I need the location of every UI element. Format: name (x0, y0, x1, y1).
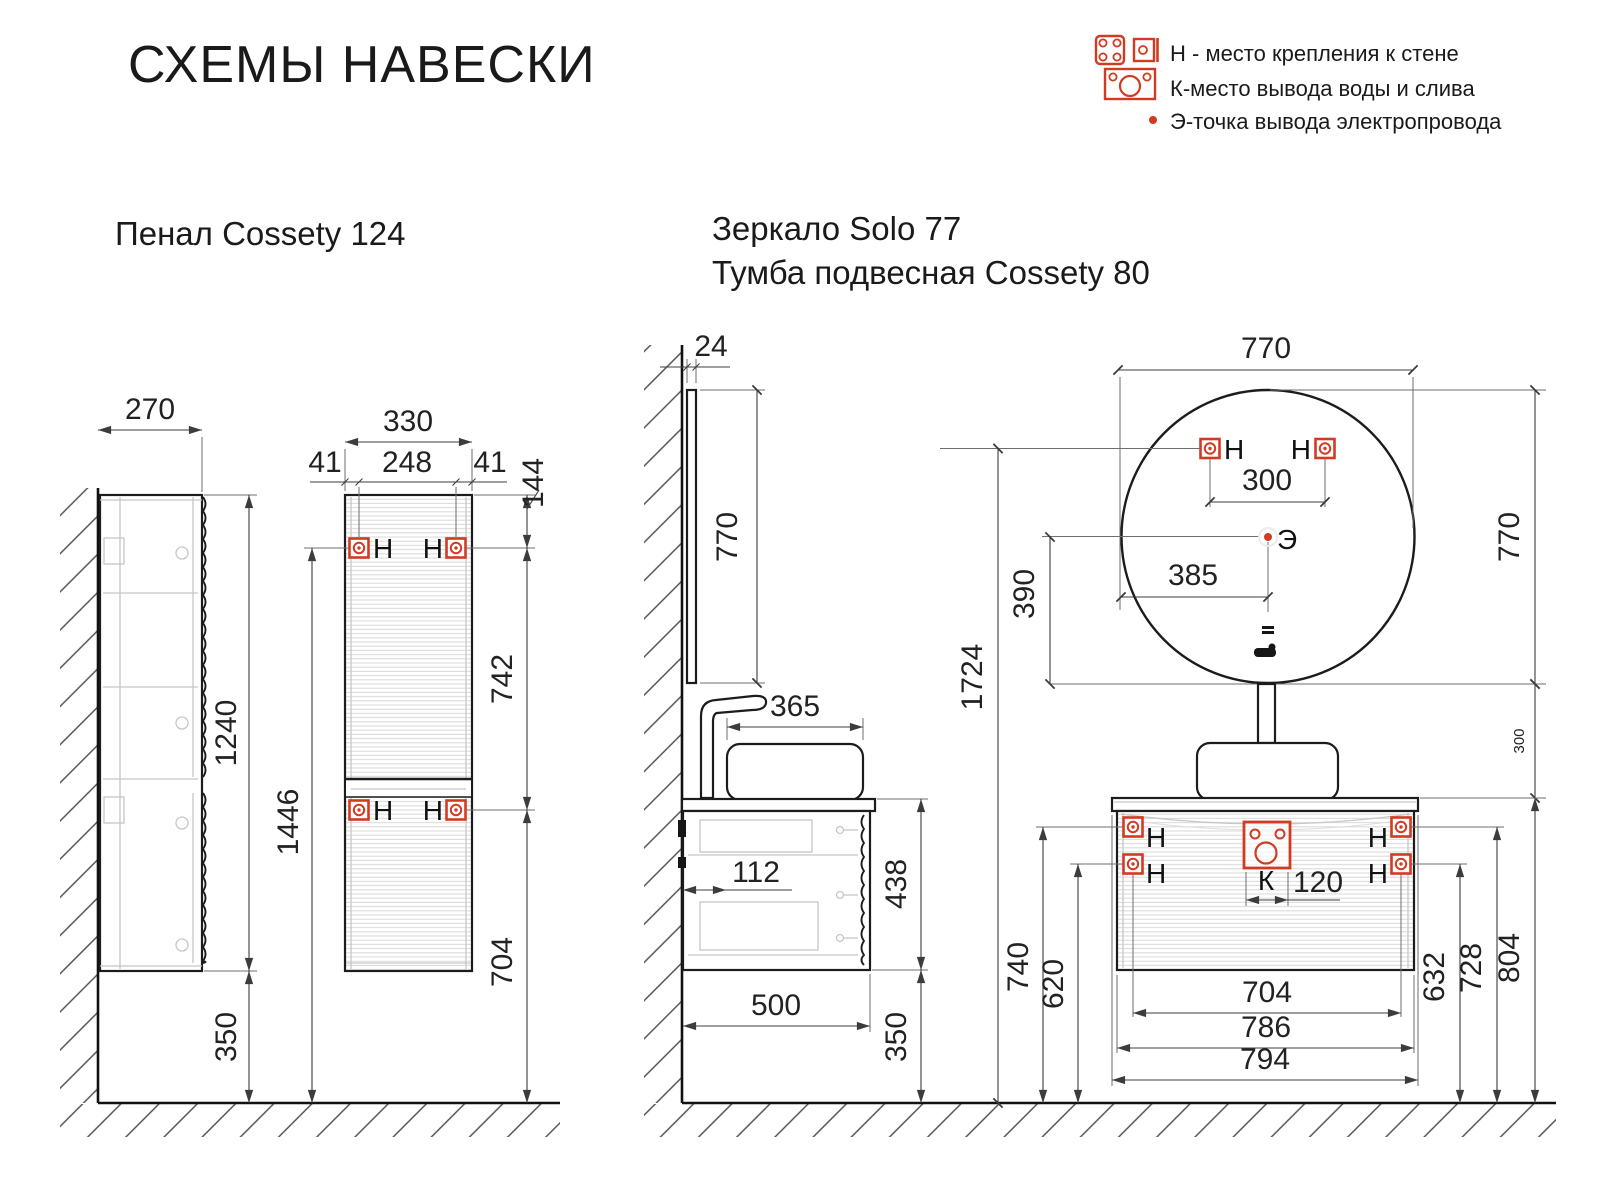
dim-vanity-depth: 500 (751, 989, 801, 1022)
wall-mount-marker (1392, 818, 1411, 837)
dim-counter-floor: 804 (1493, 933, 1526, 983)
dim-mirror-height-right: 770 (1493, 512, 1526, 562)
legend-electric-label: Э-точка вывода электропровода (1170, 109, 1502, 134)
dim-mirror-width: 770 (1241, 332, 1291, 365)
legend: Н - место крепления к стене К-место выво… (1096, 36, 1502, 134)
dim-right-lower-holes-floor: 632 (1418, 952, 1451, 1002)
legend-water-label: К-место вывода воды и слива (1170, 76, 1475, 101)
dim-mirror-height-side: 770 (711, 512, 744, 562)
wall-mount-marker (350, 539, 369, 558)
dim-mirror-holes-span: 300 (1242, 464, 1292, 497)
marker-letter-h: Н (423, 533, 443, 564)
electric-point (1264, 533, 1272, 541)
dim-vanity-height: 438 (880, 859, 913, 909)
dim-right-upper-holes-floor: 728 (1455, 943, 1488, 993)
dim-pencil-clearance: 350 (210, 1012, 243, 1062)
pencil-front-view (345, 495, 472, 971)
pencil-title: Пенал Cossety 124 (115, 215, 406, 252)
dim-lower-holes-floor: 620 (1037, 959, 1070, 1009)
marker-letter-h: Н (1368, 858, 1388, 889)
wall-mount-marker (447, 801, 466, 820)
marker-letter-e: Э (1277, 524, 1297, 555)
legend-wall-mount-label: Н - место крепления к стене (1170, 41, 1459, 66)
mirror-title: Зеркало Solo 77 (712, 210, 961, 247)
dim-pencil-depth: 270 (125, 393, 175, 426)
dim-pencil-holes-gap: 742 (486, 654, 519, 704)
dim-vanity-total-width: 794 (1240, 1043, 1290, 1076)
dim-drain-width: 120 (1293, 866, 1343, 899)
vanity-wall (644, 345, 682, 1103)
mounting-schemes-page: СХЕМЫ НАВЕСКИ Н - место крепления к стен… (0, 0, 1600, 1193)
wall-bracket-mark (678, 857, 686, 868)
page-title: СХЕМЫ НАВЕСКИ (128, 36, 596, 94)
wall-mount-front-icon (1096, 36, 1124, 64)
marker-letter-h: Н (423, 795, 443, 826)
countertop-front (1112, 798, 1418, 811)
dim-electric-from-edge: 385 (1168, 559, 1218, 592)
dim-pencil-height: 1240 (210, 700, 243, 767)
wall-bracket-mark (678, 820, 686, 837)
water-drain-marker (1244, 822, 1290, 868)
faucet-front (1258, 684, 1275, 743)
dim-sink-depth: 365 (770, 690, 820, 723)
pencil-cabinet-diagram: Пенал Cossety 124 (60, 215, 560, 1137)
marker-letter-h: Н (1368, 822, 1388, 853)
countertop-side (682, 799, 875, 811)
wall-mount-marker (1201, 439, 1220, 458)
marker-letter-h: Н (1224, 434, 1244, 465)
sink-side (727, 744, 863, 800)
pencil-wall (60, 488, 98, 1103)
dim-mirror-thickness: 24 (694, 330, 727, 363)
pencil-side-view (100, 495, 206, 971)
wall-mount-marker (447, 539, 466, 558)
dim-pencil-holes-span: 248 (382, 446, 432, 479)
mirror-side-profile (687, 390, 696, 683)
dim-electric-to-bottom: 390 (1008, 569, 1041, 619)
dim-vanity-holes-span: 704 (1242, 976, 1292, 1009)
dim-pencil-edge-right: 41 (473, 446, 506, 479)
pencil-upper-door-edge (203, 497, 206, 777)
dim-pencil-width: 330 (383, 405, 433, 438)
sink-front (1197, 743, 1338, 800)
marker-letter-h: Н (373, 795, 393, 826)
marker-letter-h: Н (1291, 434, 1311, 465)
water-drain-icon (1105, 69, 1155, 99)
electric-dot-icon (1149, 116, 1157, 124)
wall-mount-marker (1124, 818, 1143, 837)
marker-letter-h: Н (373, 533, 393, 564)
wall-mount-marker (1124, 855, 1143, 874)
vanity-floor (644, 1103, 1556, 1137)
pencil-floor (60, 1103, 560, 1137)
dim-pencil-lower-holes-floor: 704 (486, 937, 519, 987)
dim-upper-holes-floor: 740 (1002, 942, 1035, 992)
dim-pencil-top-offset: 144 (517, 458, 550, 508)
marker-letter-h: Н (1146, 822, 1166, 853)
dim-pencil-edge-left: 41 (308, 446, 341, 479)
wall-mount-marker (1316, 439, 1335, 458)
marker-letter-h: Н (1146, 858, 1166, 889)
pencil-lower-door-edge (203, 793, 206, 963)
dim-mirror-holes-floor: 1724 (956, 644, 989, 711)
marker-letter-k: К (1258, 865, 1275, 896)
mirror-vanity-diagram: Зеркало Solo 77 Тумба подвесная Cossety … (644, 210, 1556, 1137)
vanity-title: Тумба подвесная Cossety 80 (712, 254, 1150, 291)
wall-mount-marker (1392, 855, 1411, 874)
wall-mount-side-icon (1134, 38, 1158, 62)
wall-mount-marker (350, 801, 369, 820)
dim-vanity-body-width: 786 (1241, 1011, 1291, 1044)
dim-back-inset: 112 (732, 856, 780, 889)
dim-pencil-upper-holes-floor: 1446 (272, 789, 305, 856)
dim-mirror-gap: 300 (1511, 728, 1528, 753)
mounting-diagram: СХЕМЫ НАВЕСКИ Н - место крепления к стен… (0, 0, 1600, 1193)
dim-vanity-clearance: 350 (880, 1012, 913, 1062)
